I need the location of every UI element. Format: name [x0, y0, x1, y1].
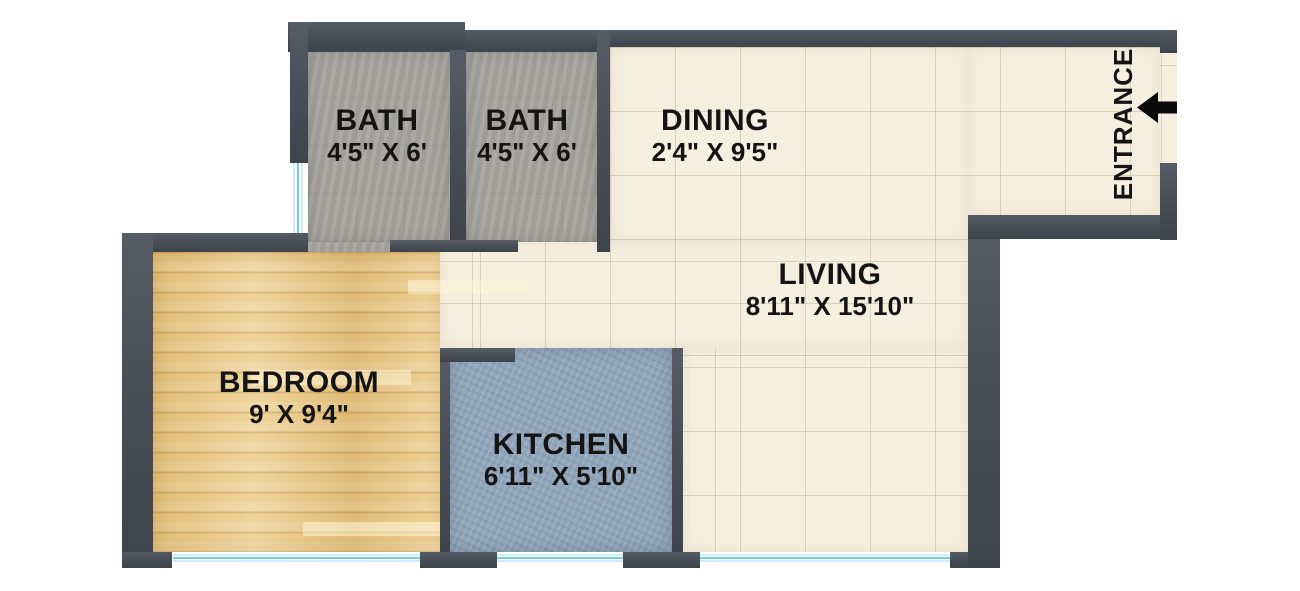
window-bedroom-bottom — [173, 554, 420, 562]
wall-right-top — [1160, 30, 1177, 53]
wall-top-bath2 — [465, 30, 610, 52]
bath-2-name: BATH — [446, 104, 608, 138]
wall-kitchen-top-stub — [440, 348, 515, 362]
entrance-label: ENTRANCE — [1107, 39, 1139, 209]
wall-top-main — [610, 30, 1177, 47]
wood-plank-highlight — [408, 280, 528, 294]
wall-bottom-segment-1 — [420, 552, 497, 568]
living-floor — [683, 348, 968, 552]
window-kitchen-bottom — [497, 554, 623, 562]
entrance-arrow-icon — [1137, 92, 1177, 123]
living-name: LIVING — [700, 258, 960, 292]
wall-right-mid — [1160, 163, 1177, 240]
living-label: LIVING 8'11" X 15'10" — [700, 258, 960, 321]
wall-under-baths — [390, 240, 518, 252]
bath-1-name: BATH — [296, 104, 458, 138]
dining-label: DINING 2'4" X 9'5" — [590, 104, 840, 167]
living-dims: 8'11" X 15'10" — [700, 292, 960, 321]
kitchen-dims: 6'11" X 5'10" — [441, 462, 681, 491]
kitchen-label: KITCHEN 6'11" X 5'10" — [441, 428, 681, 491]
bath-2-label: BATH 4'5" X 6' — [446, 104, 608, 167]
bath-1-dims: 4'5" X 6' — [296, 138, 458, 167]
window-living-bottom — [700, 554, 950, 562]
bath-2-dims: 4'5" X 6' — [446, 138, 608, 167]
bedroom-name: BEDROOM — [159, 366, 439, 400]
wall-living-right — [968, 215, 1000, 568]
kitchen-name: KITCHEN — [441, 428, 681, 462]
wall-entrance-bottom — [968, 215, 1177, 239]
bath-1-door-threshold — [308, 242, 390, 252]
wall-bottom-segment-2 — [623, 552, 700, 568]
floor-plan: BATH 4'5" X 6' BATH 4'5" X 6' DINING 2'4… — [0, 0, 1300, 591]
wall-left-exterior — [122, 233, 153, 568]
dining-name: DINING — [590, 104, 840, 138]
wall-bottom-left-corner — [122, 552, 172, 568]
window-bath1-left — [293, 163, 303, 233]
dining-dims: 2'4" X 9'5" — [590, 138, 840, 167]
bedroom-label: BEDROOM 9' X 9'4" — [159, 366, 439, 429]
bedroom-dims: 9' X 9'4" — [159, 400, 439, 429]
wall-top-bath1 — [288, 22, 465, 52]
bath-1-label: BATH 4'5" X 6' — [296, 104, 458, 167]
